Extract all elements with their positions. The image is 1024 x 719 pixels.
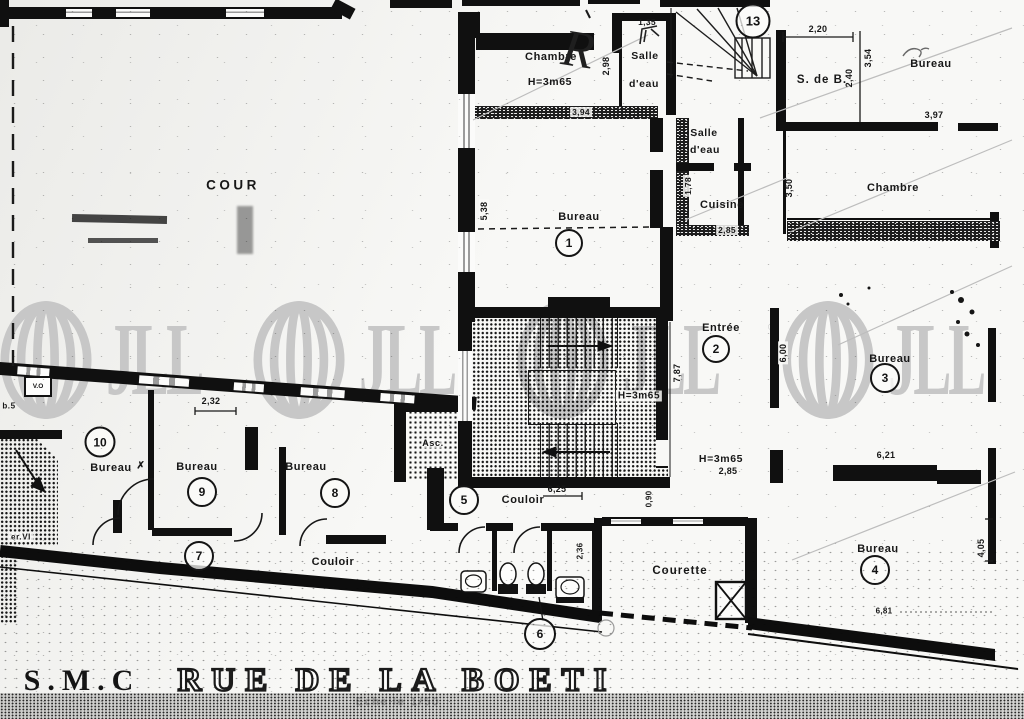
wall <box>666 13 676 115</box>
dim-2-36: 2,36 <box>576 543 585 560</box>
dim-4-05: 4,05 <box>976 539 986 558</box>
room-number-5: 5 <box>449 485 479 515</box>
west-hatch-lower <box>0 546 18 624</box>
wall <box>548 297 610 308</box>
edge-note-er-vi: er.VI <box>9 533 33 542</box>
dim-6-25: 6,25 <box>548 484 567 494</box>
stair-flight-up <box>540 318 618 368</box>
height-note-east-wing: H=3m65 <box>699 453 743 465</box>
vo-box: V.O <box>24 376 52 397</box>
shaft-x-box <box>716 582 746 619</box>
dim-3-54: 3,54 <box>863 49 873 68</box>
wall <box>776 30 786 131</box>
room-number-3: 3 <box>870 363 900 393</box>
height-note-east-wing-sub: 2,85 <box>719 466 738 476</box>
stair-landing <box>528 370 616 425</box>
room-number-8: 8 <box>320 478 350 508</box>
area-label-courette: Courette <box>652 565 707 577</box>
window <box>611 519 641 524</box>
window <box>234 382 265 392</box>
scan-smudge <box>72 214 167 224</box>
dim-2-32: 2,32 <box>202 396 221 406</box>
dim-5-38: 5,38 <box>479 200 489 223</box>
area-label-asc: Asc. <box>421 438 444 448</box>
jll-lens-icon <box>253 297 345 423</box>
wall <box>458 315 472 351</box>
wall <box>547 528 552 591</box>
wall <box>619 50 622 112</box>
area-label-cour: COUR <box>206 178 260 193</box>
dim-3-97: 3,97 <box>925 110 944 120</box>
height-note-stairwell: H=3m65 <box>616 391 662 402</box>
ink-blots <box>839 287 980 348</box>
wall <box>0 0 9 27</box>
wall <box>458 421 472 479</box>
wall <box>486 523 513 531</box>
wall <box>472 307 668 318</box>
room-number-9: 9 <box>187 477 217 507</box>
wall <box>458 148 475 232</box>
dim-2-40: 2,40 <box>844 69 854 88</box>
scan-smudge <box>237 206 253 254</box>
wall-speckled <box>676 225 749 236</box>
room-number-4: 4 <box>860 555 890 585</box>
window <box>17 366 49 376</box>
room-label-entree: Entrée <box>702 322 740 334</box>
room-number-13: 13 <box>736 4 771 39</box>
room-number-10: 10 <box>85 427 116 458</box>
wall <box>776 122 938 131</box>
wall <box>326 535 386 544</box>
handwritten-mark: R <box>558 18 599 81</box>
dim-2-98: 2,98 <box>601 57 611 76</box>
room-label-s-de-b: S. de B. <box>797 74 847 86</box>
room-label-cuisine: Cuisine <box>700 199 744 211</box>
area-label-couloir-center: Couloir <box>502 494 545 506</box>
window <box>380 392 414 402</box>
wall <box>8 7 342 19</box>
room-label-bureau-1: Bureau <box>558 211 600 223</box>
wall <box>427 468 444 530</box>
room-label-bureau-8: Bureau <box>285 461 327 473</box>
wall <box>738 118 744 234</box>
wall <box>458 36 475 94</box>
watermark-unit: JLL <box>0 296 279 424</box>
wall <box>594 518 602 622</box>
room-label-chambre-east: Chambre <box>867 182 919 194</box>
wall <box>394 412 406 482</box>
door-opening <box>656 440 668 466</box>
wall <box>676 163 714 171</box>
wall <box>113 500 122 533</box>
wall <box>958 123 998 131</box>
room-label-bureau-ne: Bureau <box>910 58 952 70</box>
dim-0-90: 0,90 <box>645 491 654 508</box>
wall <box>0 430 62 439</box>
title-company: S.M.C <box>24 664 141 698</box>
window <box>226 9 264 17</box>
wall <box>148 390 154 530</box>
window <box>673 519 703 524</box>
wall <box>458 12 480 38</box>
wall <box>650 118 663 228</box>
west-stair-hatch <box>0 438 58 546</box>
door-opening <box>650 152 663 170</box>
window <box>458 351 472 421</box>
cross-mark: ✗ <box>137 461 146 472</box>
wall <box>390 0 452 8</box>
scale-note: Echelle 1/50 <box>356 696 441 708</box>
dim-1-78: 1,78 <box>683 175 693 197</box>
hand-sketch <box>640 26 659 44</box>
dim-1-35: 1,35 <box>638 17 656 27</box>
dim-6-00: 6,00 <box>778 342 788 365</box>
edge-note-b5: b.5 <box>2 402 15 411</box>
tick-mark <box>586 10 590 18</box>
wall <box>787 218 999 220</box>
jll-lens-icon <box>782 297 874 423</box>
stair-flight-down <box>540 423 618 478</box>
wall <box>462 0 580 6</box>
window <box>116 9 150 17</box>
handwriting-scribble <box>903 48 929 57</box>
dim-3-50: 3,50 <box>784 179 794 198</box>
dim-2-85-cuisine: 2,85 <box>716 225 738 235</box>
room-label-salle-eau-upper: d'eau <box>629 78 659 90</box>
wall <box>430 523 458 531</box>
title-street: RUE DE LA BOETI <box>178 663 617 700</box>
wall-sloped <box>0 362 477 410</box>
dim-3-94: 3,94 <box>570 107 592 117</box>
window <box>458 94 475 148</box>
wall <box>833 465 937 481</box>
room-label-salle-eau-mid: Salle <box>690 127 718 139</box>
wc-fixtures <box>461 563 584 621</box>
wall-pillar <box>245 427 258 470</box>
window <box>300 387 344 398</box>
window <box>66 9 92 17</box>
wall <box>770 450 783 483</box>
room-label-bureau-4: Bureau <box>857 543 899 555</box>
window <box>139 375 189 387</box>
scan-smudge <box>88 238 158 243</box>
area-label-couloir-west: Couloir <box>312 556 355 568</box>
room-number-2: 2 <box>702 335 730 363</box>
wall-speckled <box>787 221 1000 241</box>
wall-speckled <box>462 106 658 119</box>
dim-6-21: 6,21 <box>877 450 896 460</box>
floor-plan-scan: JLL JLL JLL JLL ® <box>0 0 1024 719</box>
wall <box>937 470 981 484</box>
wall <box>745 518 757 623</box>
room-number-1: 1 <box>555 229 583 257</box>
room-number-6: 6 <box>524 618 556 650</box>
wall <box>988 448 996 564</box>
dim-2-20: 2,20 <box>809 24 828 34</box>
room-number-7: 7 <box>184 541 214 571</box>
wall <box>988 328 996 402</box>
room-label-salle-eau-mid: d'eau <box>690 144 720 156</box>
wall <box>492 528 497 591</box>
dim-6-81: 6,81 <box>876 607 893 616</box>
wall <box>152 528 232 536</box>
room-label-salle-eau-upper: Salle <box>631 50 659 62</box>
room-label-bureau-10: Bureau <box>90 462 132 474</box>
dim-7-87: 7,87 <box>672 364 682 383</box>
wall <box>588 0 640 4</box>
window <box>458 232 475 272</box>
room-label-bureau-9: Bureau <box>176 461 218 473</box>
